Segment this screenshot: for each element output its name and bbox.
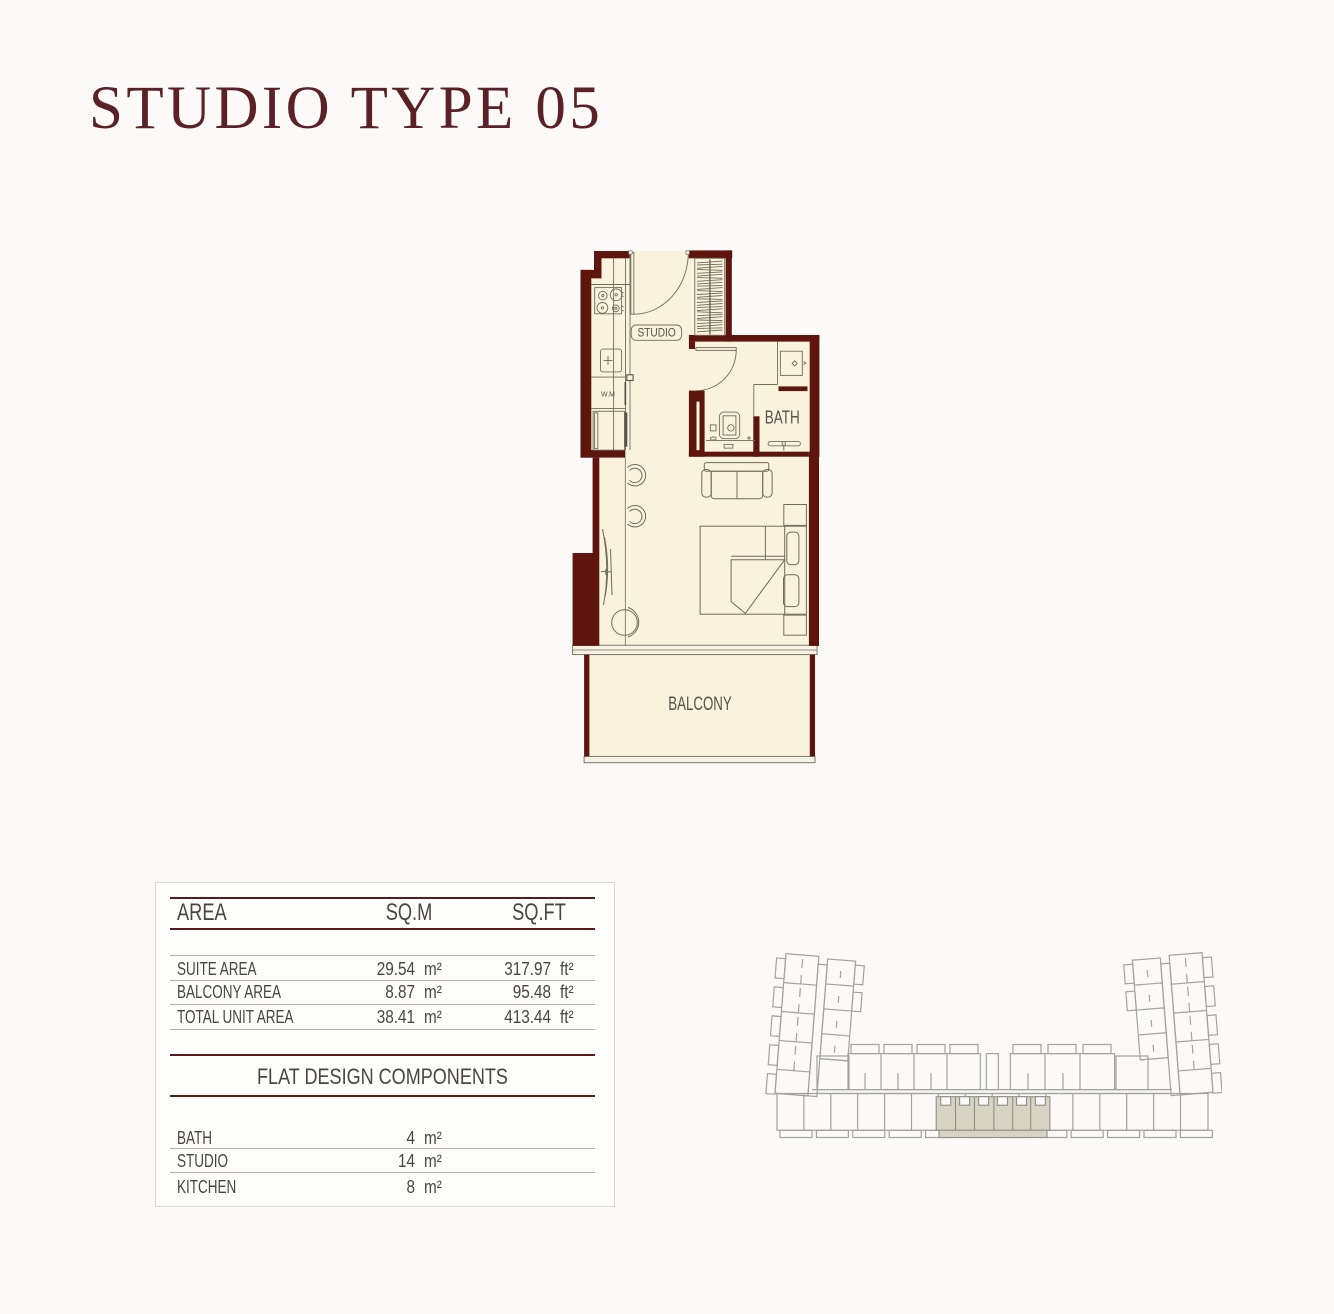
svg-text:BALCONY: BALCONY (668, 694, 732, 715)
svg-text:W.M: W.M (601, 389, 615, 398)
svg-text:BATH: BATH (765, 408, 800, 429)
svg-text:STUDIO: STUDIO (638, 327, 677, 340)
